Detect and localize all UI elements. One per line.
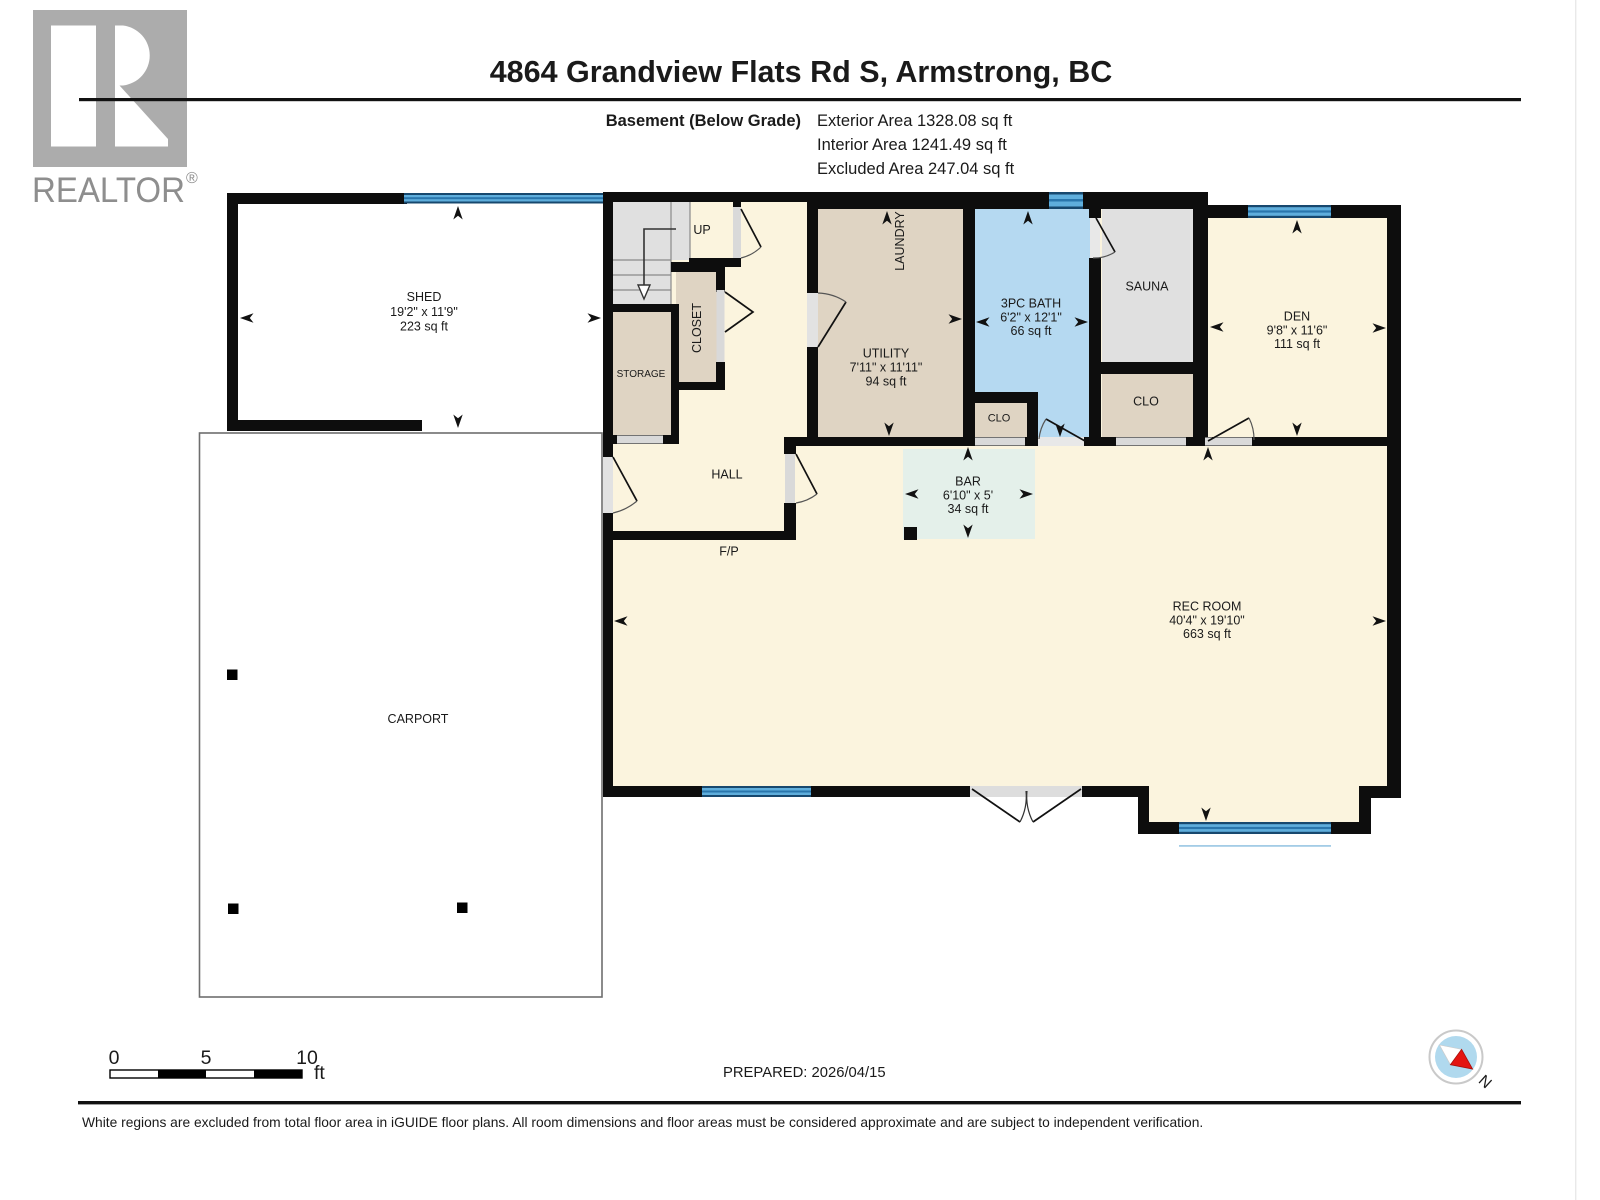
svg-text:6'2" x 12'1": 6'2" x 12'1" [1000,311,1062,325]
svg-text:BAR: BAR [955,475,981,489]
svg-text:19'2" x 11'9": 19'2" x 11'9" [390,305,458,319]
svg-text:3PC BATH: 3PC BATH [1001,297,1061,311]
svg-text:94 sq ft: 94 sq ft [866,375,908,389]
svg-text:CLOSET: CLOSET [690,303,704,353]
svg-text:PREPARED: 2026/04/15: PREPARED: 2026/04/15 [723,1065,886,1081]
svg-text:LAUNDRY: LAUNDRY [893,211,907,271]
svg-text:111 sq ft: 111 sq ft [1274,337,1321,351]
svg-text:UTILITY: UTILITY [863,347,910,361]
svg-text:5: 5 [201,1047,212,1069]
svg-text:4864 Grandview Flats Rd S, Arm: 4864 Grandview Flats Rd S, Armstrong, BC [490,55,1113,89]
svg-text:Interior Area 1241.49 sq ft: Interior Area 1241.49 sq ft [817,136,1007,154]
svg-text:®: ® [186,170,198,187]
svg-text:REC ROOM: REC ROOM [1173,600,1242,614]
svg-text:SHED: SHED [407,290,442,304]
svg-text:40'4" x 19'10": 40'4" x 19'10" [1169,614,1245,628]
svg-text:223 sq ft: 223 sq ft [400,320,448,334]
svg-text:CLO: CLO [1133,395,1159,409]
svg-text:REALTOR: REALTOR [32,171,185,210]
svg-text:0: 0 [109,1047,120,1069]
svg-text:CLO: CLO [988,413,1011,425]
svg-text:UP: UP [693,223,710,237]
svg-text:Basement (Below Grade): Basement (Below Grade) [606,112,801,130]
svg-text:34 sq ft: 34 sq ft [948,502,990,516]
svg-text:SAUNA: SAUNA [1125,280,1169,294]
svg-text:Excluded Area 247.04 sq ft: Excluded Area 247.04 sq ft [817,160,1015,178]
svg-text:66 sq ft: 66 sq ft [1011,324,1053,338]
svg-text:F/P: F/P [719,545,738,559]
svg-text:9'8" x 11'6": 9'8" x 11'6" [1267,324,1328,338]
svg-text:CARPORT: CARPORT [388,712,449,726]
svg-text:White regions are excluded fro: White regions are excluded from total fl… [82,1115,1203,1130]
svg-text:6'10" x 5': 6'10" x 5' [943,489,993,503]
svg-text:HALL: HALL [711,468,742,482]
svg-text:663 sq ft: 663 sq ft [1183,627,1231,641]
svg-text:ft: ft [314,1062,325,1084]
svg-text:STORAGE: STORAGE [617,369,666,380]
svg-text:7'11" x 11'11": 7'11" x 11'11" [850,361,923,375]
svg-text:DEN: DEN [1284,310,1310,324]
svg-text:Exterior Area 1328.08 sq ft: Exterior Area 1328.08 sq ft [817,112,1013,130]
